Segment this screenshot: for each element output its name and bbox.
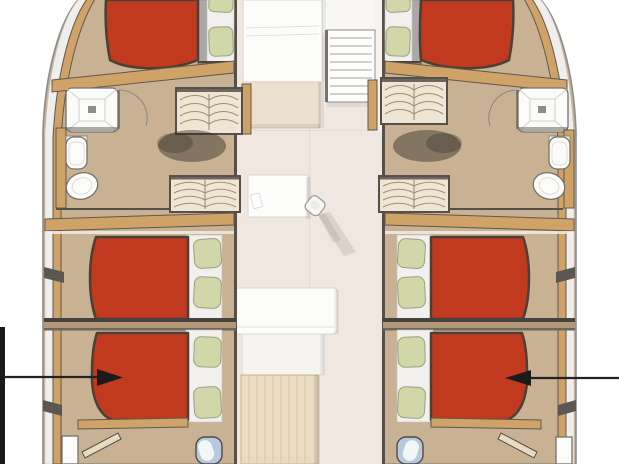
port-stairs-upper	[176, 84, 251, 134]
pillow	[385, 27, 410, 57]
berth-red	[106, 0, 198, 68]
berth-red	[90, 237, 188, 319]
saloon-bench	[242, 334, 323, 375]
floorplan-canvas	[0, 0, 619, 464]
stair-shadow	[157, 133, 193, 153]
starboard-mid-berth	[397, 235, 529, 321]
port-cabin-wall	[44, 318, 236, 331]
wood-panel	[241, 375, 320, 464]
pillow	[397, 276, 426, 308]
pillow	[193, 386, 222, 418]
pillow	[193, 337, 221, 368]
vanity-counter	[56, 128, 66, 208]
starboard-cabin-wall	[383, 318, 575, 331]
berth-red	[420, 0, 514, 68]
floor-seam	[236, 130, 384, 131]
starboard-hull	[368, 0, 576, 464]
door	[62, 436, 78, 464]
port-stairs-lower	[170, 176, 240, 212]
pillow	[208, 0, 233, 13]
shower	[518, 88, 568, 132]
deck-plan-drawing	[0, 0, 619, 464]
pillow	[209, 27, 234, 57]
saloon-fore-deck	[322, 0, 384, 33]
drain	[538, 106, 546, 113]
pillow	[193, 276, 222, 308]
saloon-area	[234, 0, 385, 464]
pillow	[397, 386, 426, 418]
berth-base	[78, 418, 188, 429]
port-hull	[43, 0, 251, 464]
door	[556, 437, 572, 464]
pillow	[385, 0, 410, 13]
galley-counter	[243, 0, 326, 128]
toilet	[549, 136, 570, 169]
pillow	[397, 337, 425, 368]
stair-shadow	[426, 133, 462, 153]
berth-red	[431, 237, 529, 319]
left-callout-bar	[0, 327, 5, 464]
berth-base	[431, 418, 541, 429]
starboard-forward-berth	[385, 0, 513, 71]
pillow	[397, 238, 426, 269]
bulkhead-highlight	[385, 231, 574, 234]
pillow	[193, 238, 222, 269]
shower	[66, 88, 118, 132]
bulkhead-highlight	[45, 231, 234, 234]
port-mid-berth	[90, 235, 222, 321]
drain	[88, 106, 96, 113]
galley-base	[251, 82, 320, 128]
toilet	[66, 136, 87, 169]
starboard-stairs-lower	[379, 176, 449, 212]
port-forward-berth	[106, 0, 234, 71]
